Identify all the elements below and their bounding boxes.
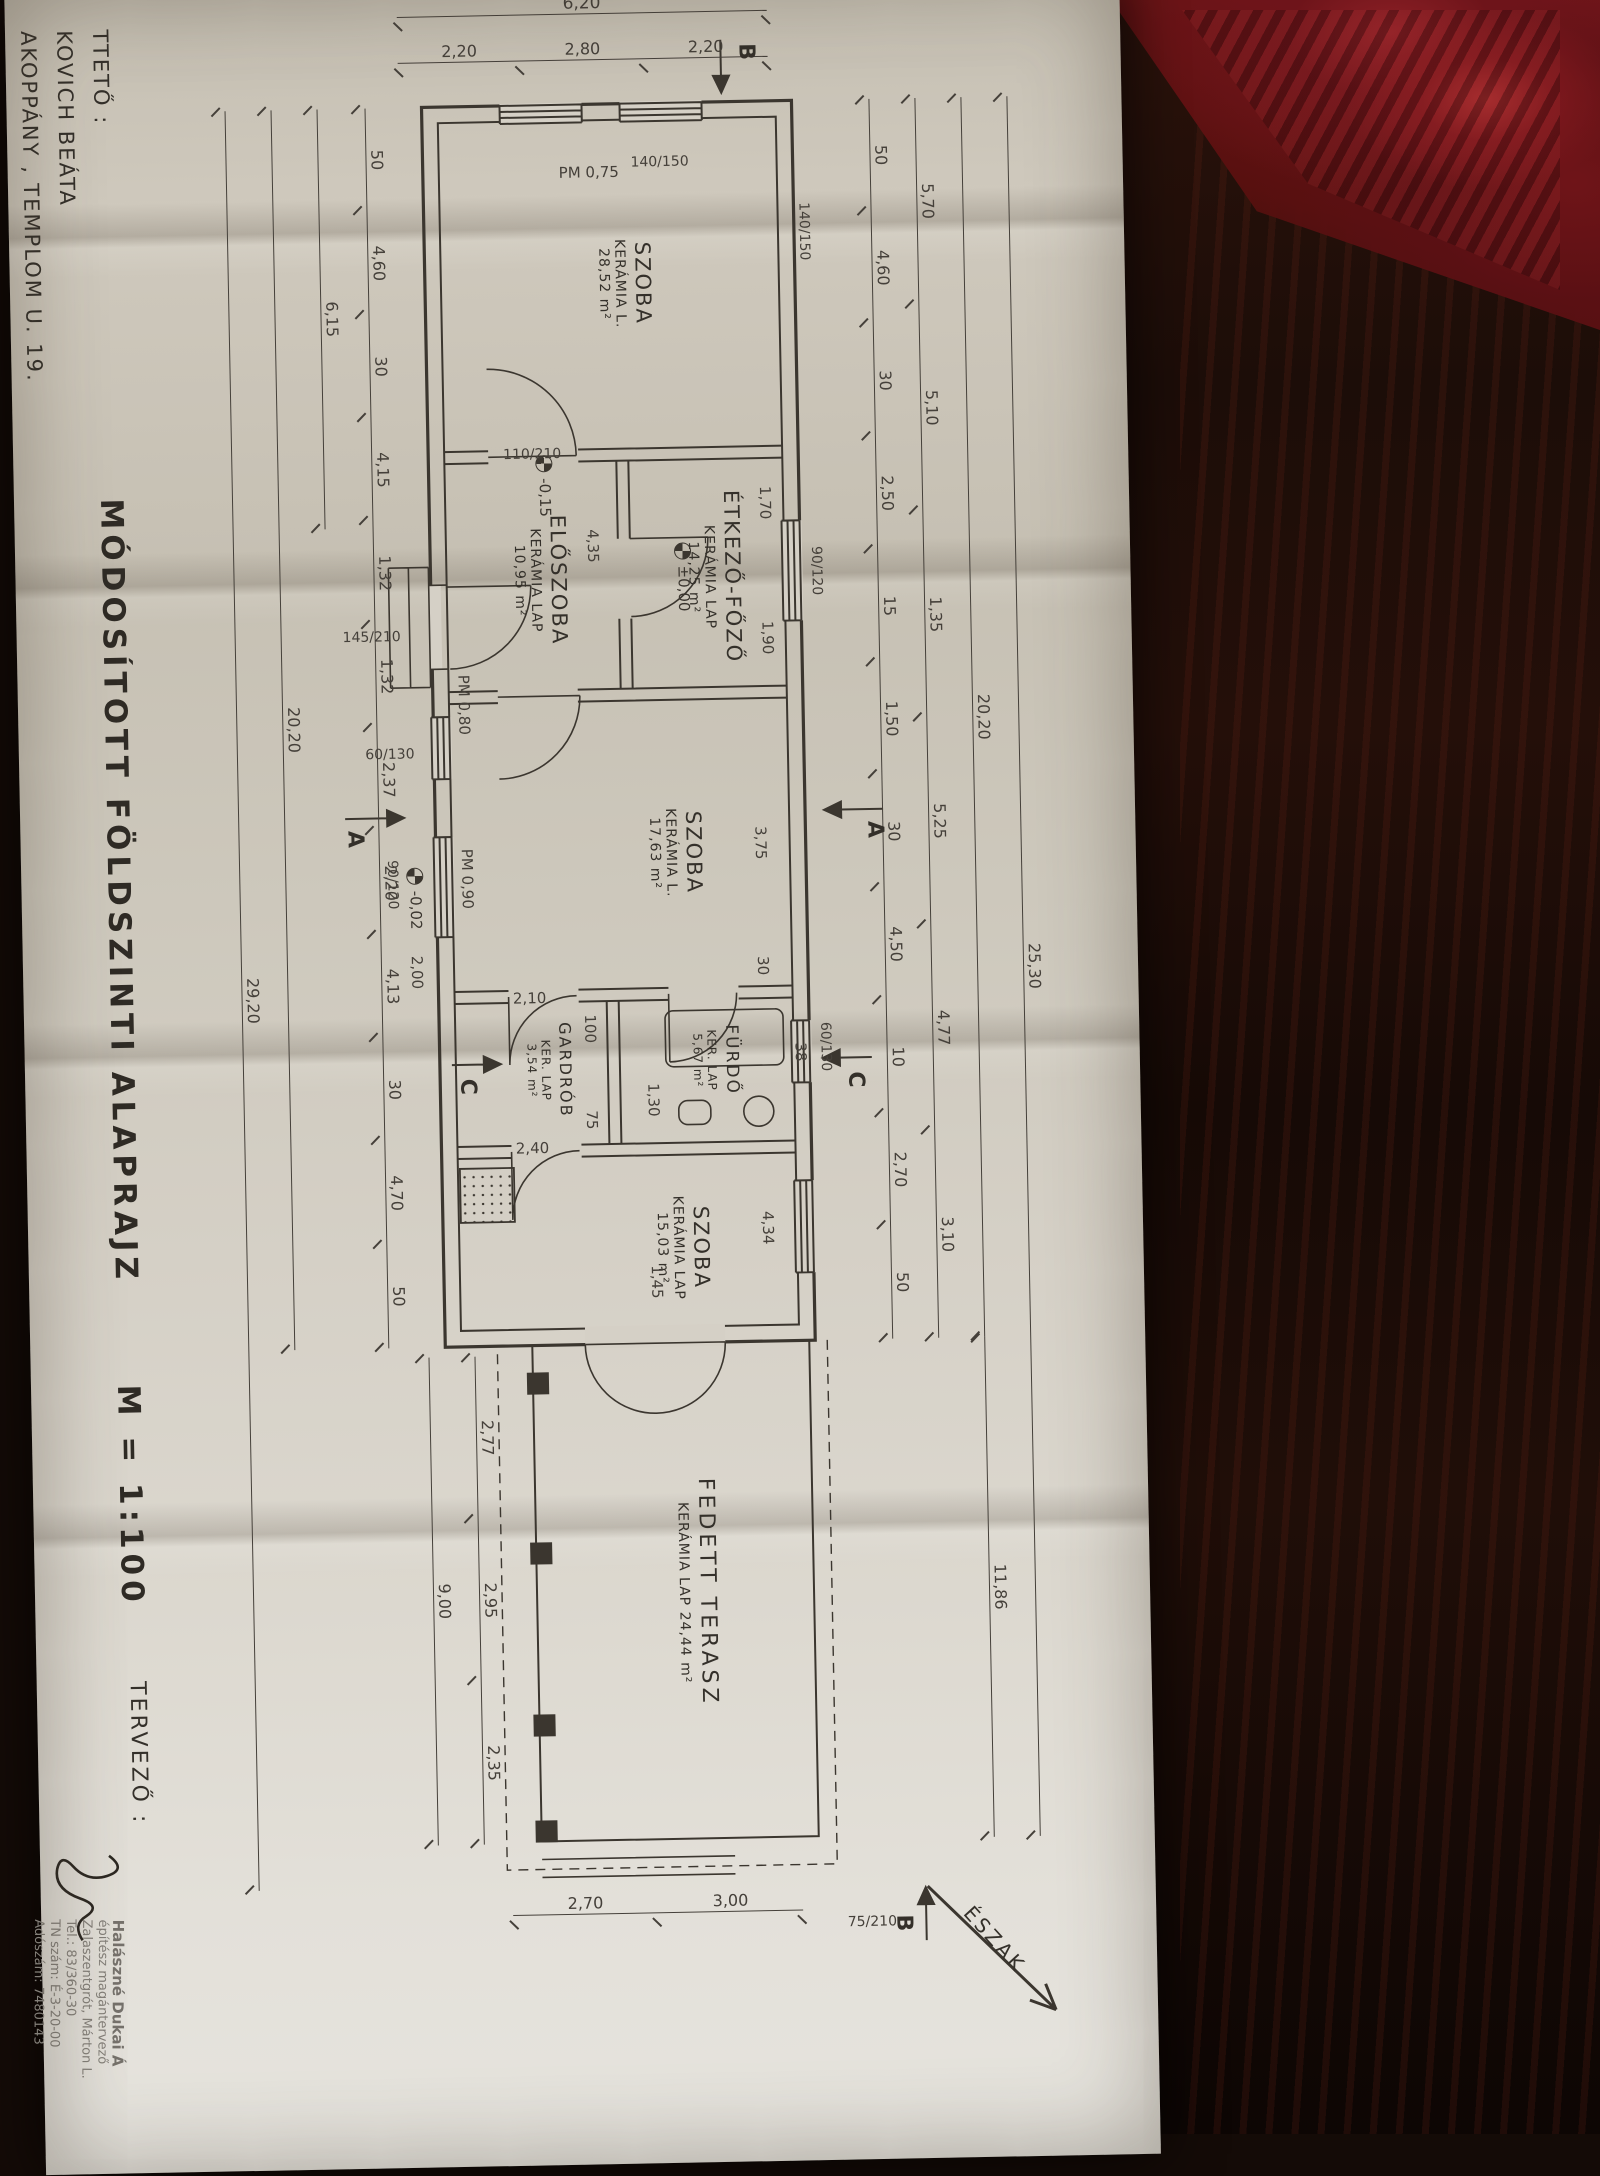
dim-etk2: 1,90 bbox=[758, 621, 777, 655]
section-a-label-top: A bbox=[862, 821, 887, 839]
dim-szoba2: 3,75 bbox=[751, 826, 770, 860]
dim-value: 2,70 bbox=[889, 1113, 911, 1226]
room-label-szoba3: SZOBA KERÁMIA LAP 15,03 m² bbox=[653, 1162, 715, 1333]
dim-value: 4,60 bbox=[367, 211, 389, 315]
client-label: TTETŐ : bbox=[82, 29, 125, 381]
opening-110-210: 110/210 bbox=[503, 446, 561, 463]
dim-value: 4,60 bbox=[872, 211, 894, 324]
dim-75: 75 bbox=[583, 1110, 601, 1129]
dim-value: 2,70 bbox=[513, 1892, 658, 1915]
dim-value: 2,50 bbox=[876, 437, 898, 550]
opening-60-130b: 60/130 bbox=[817, 1022, 834, 1072]
designer-label: TERVEZŐ : bbox=[125, 1681, 153, 1826]
dim-terasz-door: 1,45 bbox=[648, 1265, 667, 1299]
dim-value: 4,13 bbox=[381, 935, 403, 1039]
terrace-roof-dashed bbox=[497, 1340, 837, 1870]
blueprint-sheet: SZOBA KERÁMIA L. 28,52 m² ELŐSZOBA KERÁM… bbox=[4, 0, 1161, 2175]
window-bottom-eloszoba bbox=[431, 717, 452, 779]
dim-value: 2,95 bbox=[479, 1519, 502, 1682]
dim-value: 2,35 bbox=[482, 1682, 505, 1845]
section-c-arrow-bottom bbox=[452, 1056, 501, 1073]
client-name: KOVICH BEÁTA bbox=[46, 30, 89, 382]
window-bottom-szoba2 bbox=[434, 837, 456, 937]
dim-gardrob2: 2,10 bbox=[513, 989, 547, 1008]
level-icon bbox=[407, 868, 424, 885]
room-label-szoba2: SZOBA KERÁMIA L. 17,63 m² bbox=[645, 752, 708, 953]
dim-100: 100 bbox=[581, 1014, 600, 1043]
stamp-name: Halászné Dukai Á bbox=[109, 1920, 126, 2079]
wood-grain-streaks bbox=[1180, 0, 1600, 2134]
dim-value: 4,70 bbox=[385, 1141, 407, 1245]
level-marker-zero: ±0,00 bbox=[674, 542, 693, 611]
client-block: TTETŐ : KOVICH BEÁTA AKOPPÁNY , TEMPLOM … bbox=[10, 29, 125, 383]
section-b-label-right: B bbox=[891, 1914, 916, 1931]
wall-szoba1 bbox=[444, 446, 782, 464]
dim-etk1: 1,70 bbox=[756, 486, 775, 520]
dim-30: 30 bbox=[754, 956, 772, 975]
architect-stamp: Halászné Dukai Á építész magántervező Za… bbox=[29, 1919, 126, 2079]
section-b-label-left: B bbox=[733, 43, 758, 60]
stamp-city: Zalaszentgrót, Márton L. bbox=[77, 1919, 94, 2078]
stamp-role: építész magántervező bbox=[93, 1920, 110, 2079]
dim-value: 2,20 bbox=[379, 831, 401, 935]
window-top-szoba3 bbox=[794, 1180, 816, 1272]
dim-value: 2,20 bbox=[397, 41, 521, 63]
stamp-tn: TN szám: É-3-20-00 bbox=[45, 1919, 62, 2078]
room-label-gardrob: GARDRÓB KER. LAP 3,54 m² bbox=[524, 1005, 576, 1136]
wall-etkezo-eloszoba bbox=[616, 461, 632, 689]
dim-szoba3: 4,34 bbox=[759, 1211, 778, 1245]
opening-75-210: 75/210 bbox=[848, 1913, 898, 1930]
door-szoba2 bbox=[498, 696, 582, 780]
parapet-pm075: PM 0,75 bbox=[559, 163, 619, 182]
wall-szoba2-furdo bbox=[454, 986, 792, 1004]
chimney bbox=[460, 1168, 515, 1223]
dim-value: 50 bbox=[869, 98, 891, 211]
parapet-pm090: PM 0,90 bbox=[458, 849, 477, 909]
section-b-arrow-right bbox=[918, 1887, 935, 1940]
dim-eloszoba: 4,35 bbox=[584, 529, 603, 563]
wall-eloszoba-szoba2 bbox=[449, 686, 787, 704]
dim-value: 2,77 bbox=[475, 1356, 498, 1519]
client-address: AKOPPÁNY , TEMPLOM U. 19. bbox=[10, 31, 53, 383]
dim-value: 1,50 bbox=[880, 662, 902, 775]
dim-value: 1,32 bbox=[375, 625, 397, 729]
door-szoba3 bbox=[512, 1151, 581, 1220]
level-marker-terrace: -0,02 bbox=[406, 868, 425, 930]
section-c-label-top: C bbox=[843, 1071, 868, 1088]
stamp-tax: Adószám: 7480143 bbox=[29, 1919, 46, 2078]
terrace-column bbox=[531, 1543, 551, 1563]
window-gable-2 bbox=[499, 102, 581, 124]
terrace-column bbox=[528, 1373, 548, 1393]
room-label-terasz: FEDETT TERASZ KERÁMIA LAP 24,44 m² bbox=[673, 1452, 722, 1733]
dim-value: 3,00 bbox=[658, 1889, 803, 1912]
terrace-column bbox=[536, 1821, 556, 1841]
dim-furdo: 1,30 bbox=[644, 1083, 663, 1117]
section-a-label-bottom: A bbox=[342, 831, 367, 849]
opening-140-150b: 140/150 bbox=[795, 202, 812, 260]
dim-value: 5,70 bbox=[915, 98, 939, 305]
dim-value: 4,15 bbox=[371, 418, 393, 522]
dim-gardrob1: 2,40 bbox=[516, 1139, 550, 1158]
opening-140-150: 140/150 bbox=[630, 153, 688, 170]
room-label-szoba1: SZOBA KERÁMIA L. 28,52 m² bbox=[594, 183, 657, 384]
dim-value: 30 bbox=[874, 324, 896, 437]
section-c-label-bottom: C bbox=[455, 1079, 480, 1096]
opening-90-120: 90/120 bbox=[808, 546, 825, 596]
parapet-pm080: PM 0,80 bbox=[454, 675, 473, 735]
terrace-french-door bbox=[585, 1342, 726, 1415]
dim-value: 15 bbox=[878, 549, 900, 662]
dim-value: 5,10 bbox=[919, 304, 943, 511]
level-icon bbox=[674, 542, 691, 559]
dim-value: 2,80 bbox=[521, 38, 645, 60]
dim-value: 30 bbox=[369, 315, 391, 419]
dim-value: 50 bbox=[366, 108, 388, 212]
dim-value: 4,50 bbox=[885, 887, 907, 1000]
dim-szoba2-b: 2,00 bbox=[408, 956, 427, 990]
scale-text: M = 1:100 bbox=[110, 1384, 150, 1607]
door-szoba1 bbox=[487, 368, 577, 458]
dim-value: 2,37 bbox=[377, 728, 399, 832]
dim-value: 50 bbox=[387, 1245, 409, 1349]
window-gable-1 bbox=[619, 100, 701, 122]
dim-value: 3,10 bbox=[935, 1131, 959, 1338]
dim-38: 38 bbox=[792, 1042, 810, 1061]
wall-gardrob-szoba3 bbox=[457, 1140, 795, 1158]
wall-furdo-gardrob bbox=[607, 1001, 622, 1144]
dim-value: 30 bbox=[383, 1038, 405, 1142]
sink bbox=[744, 1096, 775, 1127]
dim-value: 5,25 bbox=[927, 718, 951, 925]
room-label-etkezo: ÉTKEZŐ-FŐZŐ KERÁMIA LAP 14,25 m² bbox=[684, 471, 747, 682]
room-label-furdo: FÜRDŐ KER. LAP 5,67 m² bbox=[690, 1000, 743, 1121]
dim-value: 1,35 bbox=[923, 511, 947, 718]
terrace-column bbox=[534, 1715, 554, 1735]
dim-value: 1,32 bbox=[373, 521, 395, 625]
stamp-phone: Tel.: 83/360-30 bbox=[61, 1919, 78, 2078]
section-a-arrow-top bbox=[824, 801, 883, 818]
dim-value: 4,77 bbox=[931, 924, 955, 1131]
dim-value: 50 bbox=[891, 1226, 913, 1339]
level-marker-entry: -0,15 bbox=[535, 455, 554, 517]
window-top-etkezo bbox=[781, 520, 803, 620]
dim-value: 10 bbox=[887, 1000, 909, 1113]
